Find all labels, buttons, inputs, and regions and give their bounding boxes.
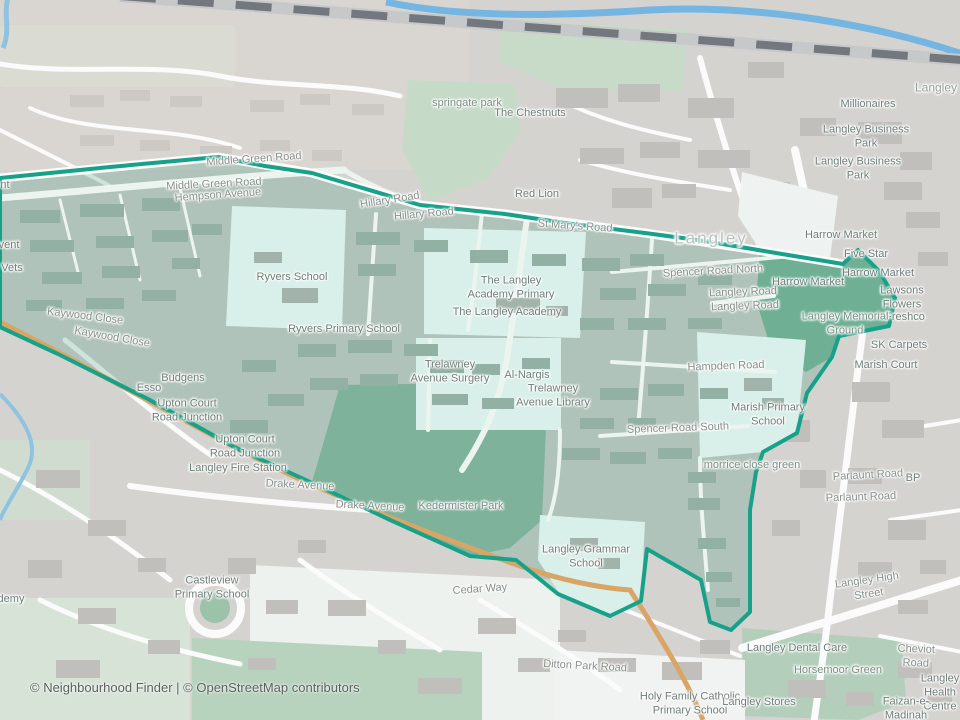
map-viewport[interactable]: ntventVetsdemyHempson AvenueMiddle Green… [0, 0, 960, 720]
map-label: Vets [1, 262, 22, 276]
map-label: Upton Court Road Junction [210, 433, 280, 461]
map-label: Drake Avenue [265, 477, 335, 494]
map-label: Harrow Market [805, 229, 877, 243]
map-label: Spencer Road North [663, 263, 764, 282]
map-label: Harrow Market [842, 267, 914, 281]
map-label: St Mary's Road [537, 218, 613, 237]
map-label: Budgens [161, 372, 204, 386]
map-label: Millionaires [840, 98, 895, 112]
map-label: Trelawney Avenue Library [516, 382, 590, 410]
attribution: © Neighbourhood Finder | © OpenStreetMap… [30, 680, 360, 695]
map-label: Langley [915, 81, 957, 96]
map-label: Langley Fire Station [189, 462, 287, 476]
map-label: BP [906, 472, 921, 486]
map-label: The Langley Academy Primary [468, 274, 555, 302]
map-label: Horsemoor Green [794, 664, 882, 678]
map-label: Kaywood Close [46, 306, 124, 329]
map-label: Hampden Road [687, 359, 764, 375]
map-label: Upton Court Road Junction [152, 397, 222, 425]
map-label: Al-Nargis [504, 369, 549, 383]
map-label: Middle Green Road [206, 150, 302, 170]
map-label: Langley High Street [821, 568, 916, 608]
map-labels-layer: ntventVetsdemyHempson AvenueMiddle Green… [0, 0, 960, 720]
map-label: Hillary Road [394, 206, 455, 225]
map-label: Ditton Park Road [543, 658, 627, 676]
map-label: Langley Dental Care [747, 642, 847, 656]
map-label: Freshco [885, 311, 925, 325]
map-label: SK Carpets [871, 339, 927, 353]
map-label: Cedar Way [452, 581, 507, 599]
map-label: Ryvers Primary School [288, 323, 400, 337]
map-label: Faizan-e-Madinah [879, 695, 933, 720]
map-label: Harrow Market [772, 276, 844, 290]
map-label: Marish Court [855, 359, 918, 373]
map-label: Langley Business Park [807, 155, 909, 183]
map-label: The Chestnuts [494, 107, 566, 121]
map-label: Langley Grammar School [542, 543, 630, 571]
map-label: Kedermister Park [419, 500, 504, 514]
map-label: Langley Road [711, 299, 779, 315]
map-label: Five Star [844, 248, 888, 262]
map-label: Trelawney Avenue Surgery [411, 358, 490, 386]
map-label: Langley [674, 227, 748, 248]
map-label: Marish Primary School [731, 401, 805, 429]
map-label: Parlaunt Road [826, 490, 897, 506]
map-label: Esso [137, 382, 161, 396]
map-label: Cheviot Road [894, 642, 939, 671]
map-label: Kaywood Close [73, 325, 151, 352]
map-label: demy [0, 593, 24, 607]
map-label: Langley Memorial Ground [802, 310, 889, 338]
map-label: Parlaunt Road [833, 467, 904, 484]
map-label: Spencer Road South [627, 420, 730, 437]
map-label: Langley Business Park [819, 123, 913, 151]
map-label: Castleview Primary School [175, 574, 250, 602]
map-label: The Langley Academy [453, 306, 562, 320]
map-label: Langley Stores [722, 696, 795, 710]
map-label: Lawsons Flowers [873, 284, 931, 312]
map-label: springate park [432, 97, 502, 111]
map-label: morrice close green [704, 459, 801, 473]
map-label: vent [0, 239, 19, 253]
map-label: Ryvers School [257, 271, 328, 285]
map-label: Drake Avenue [335, 498, 405, 515]
map-label: Red Lion [515, 188, 559, 202]
map-label: nt [0, 179, 9, 193]
